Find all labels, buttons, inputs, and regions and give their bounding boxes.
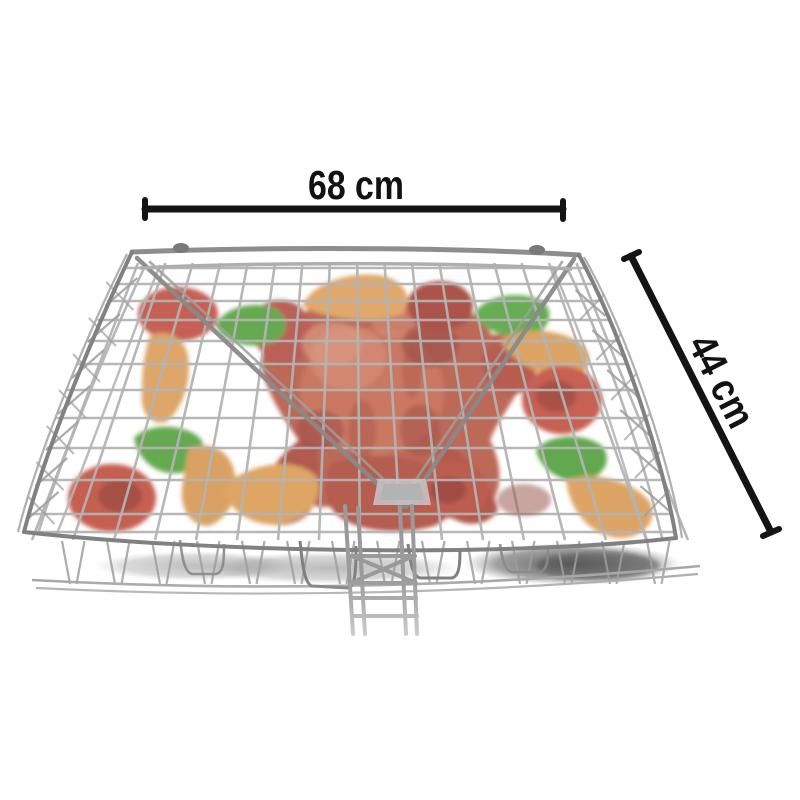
svg-text:68 cm: 68 cm	[308, 162, 404, 208]
